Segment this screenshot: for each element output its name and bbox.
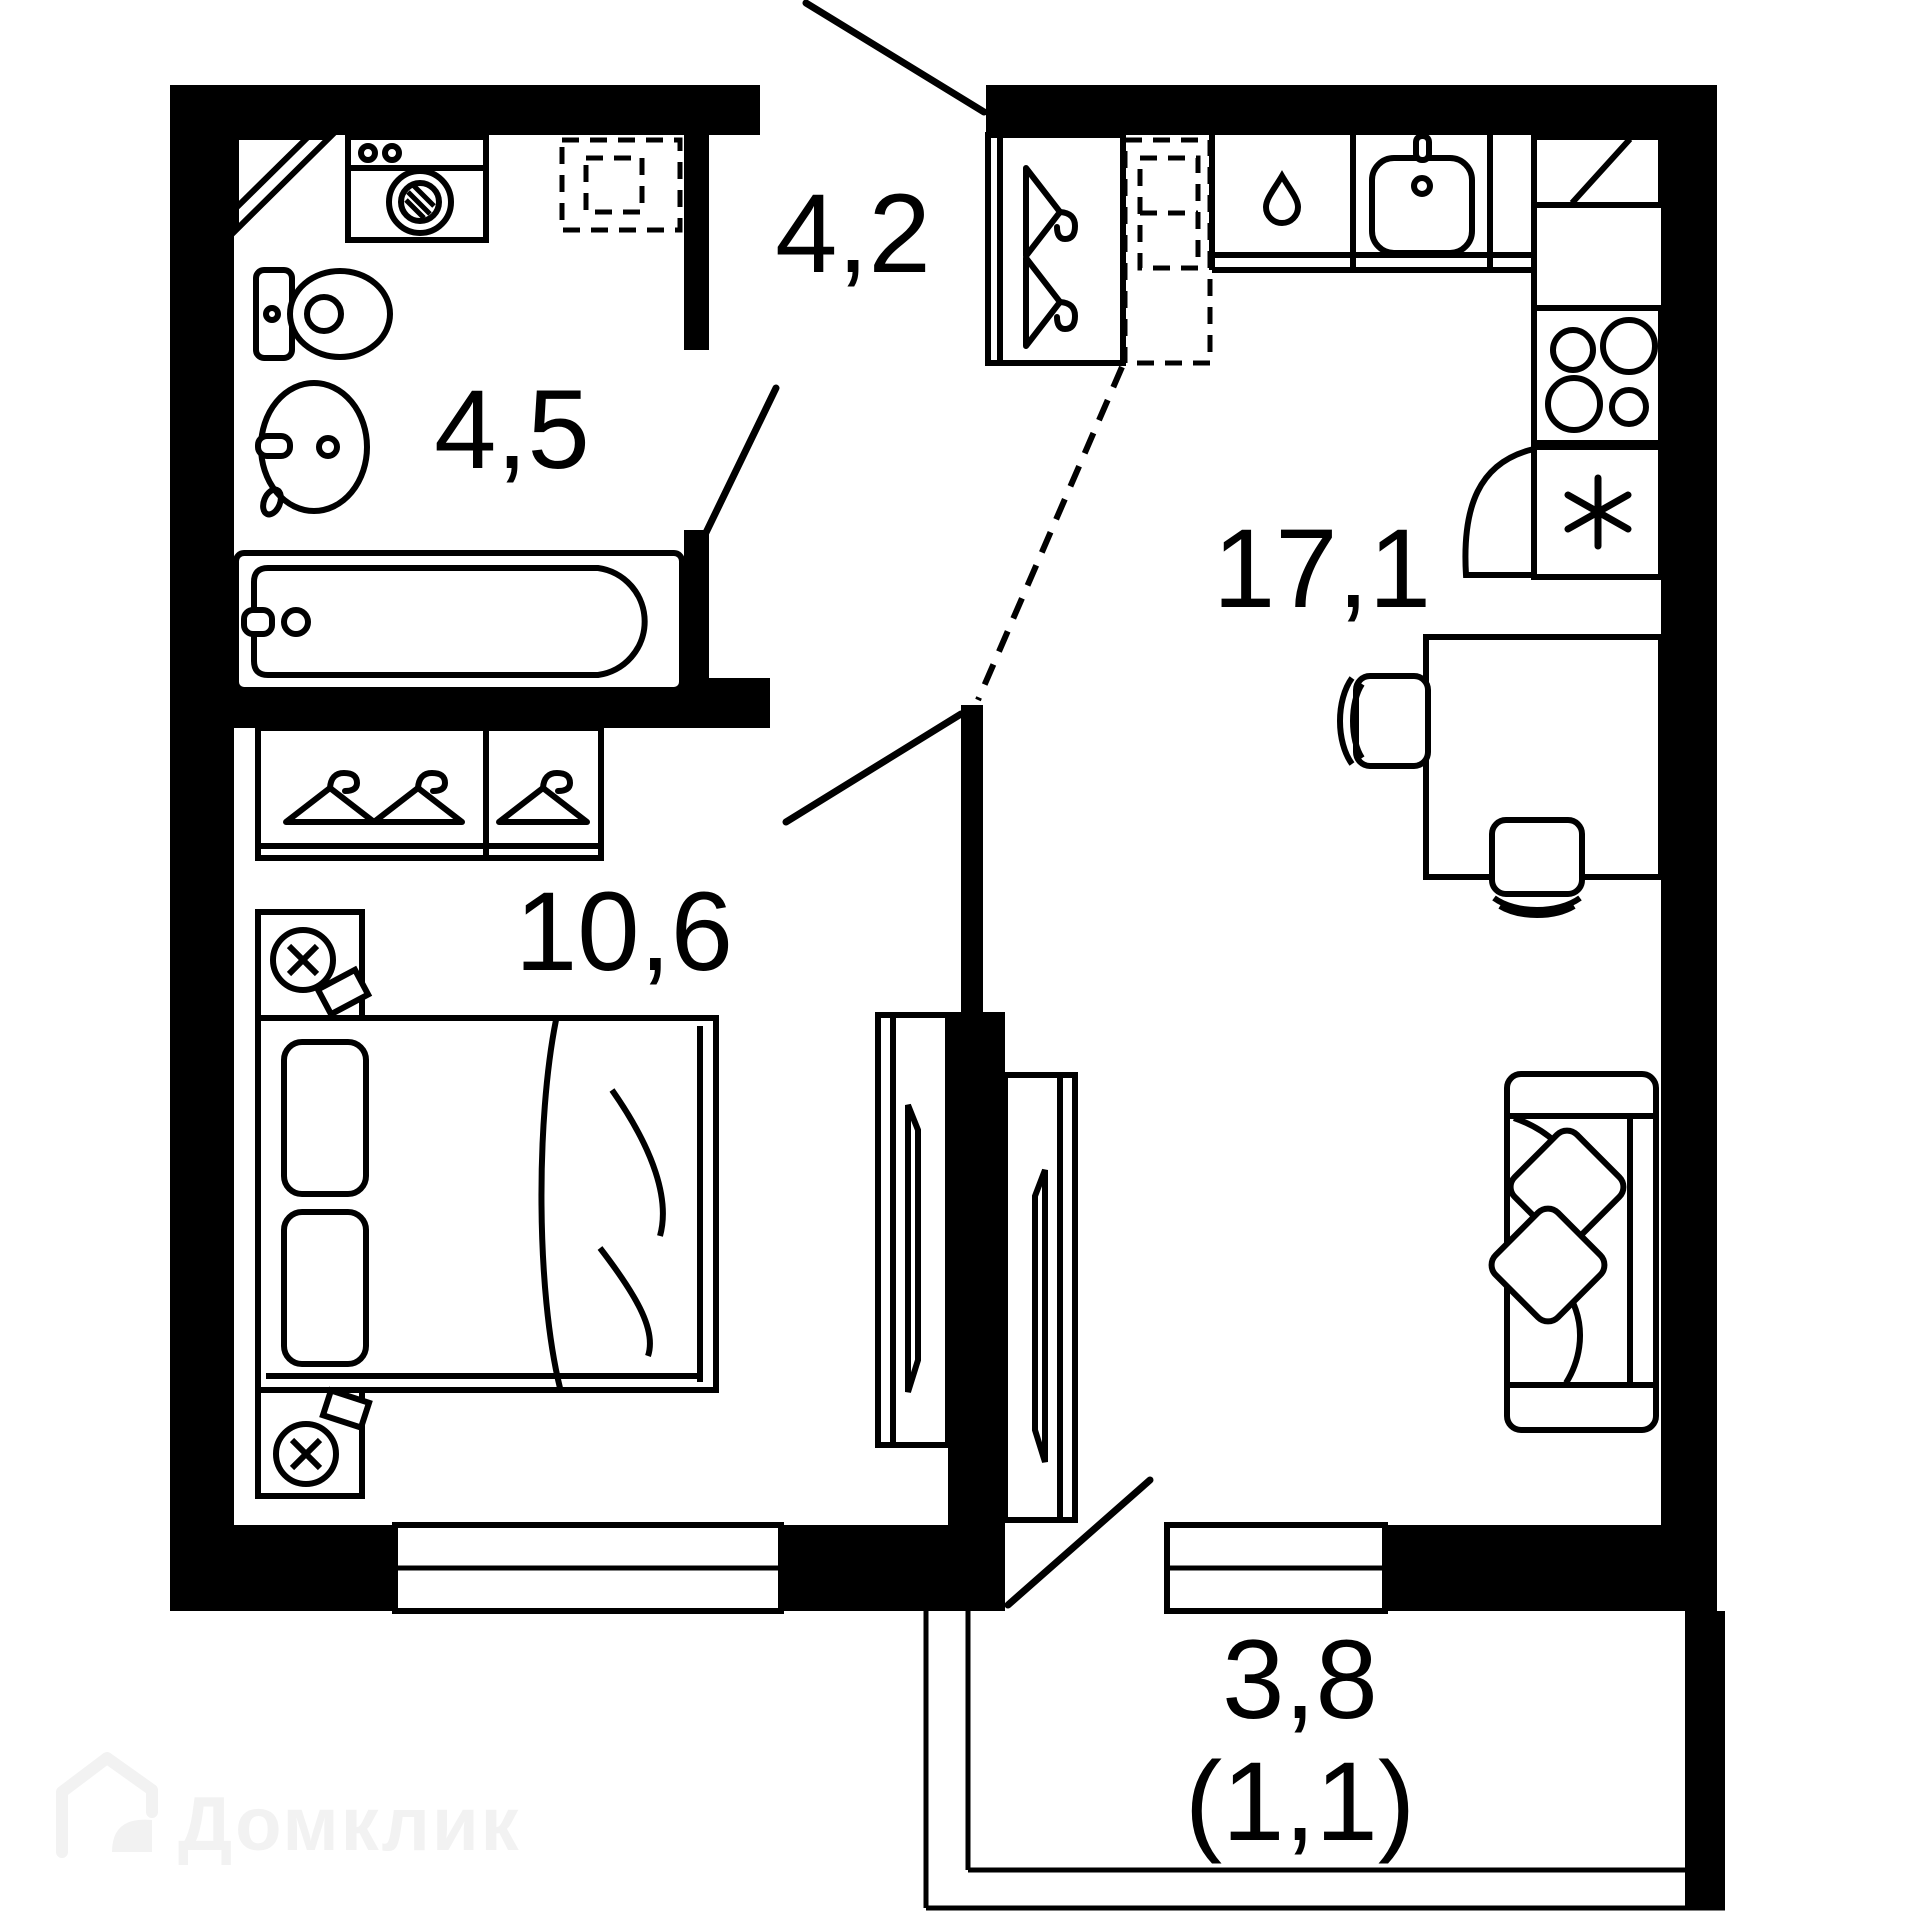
- living-window: [1167, 1525, 1385, 1611]
- bedroom-window: [395, 1525, 781, 1611]
- stove-icon: [1534, 308, 1661, 443]
- freezer-asterisk-icon: [1534, 447, 1661, 577]
- wall-bathroom-right-lower: [684, 530, 709, 690]
- watermark-house-flag: [112, 1820, 152, 1852]
- corner-shelf-icon: [236, 137, 330, 230]
- corner-cabinet-icon: [1534, 137, 1661, 205]
- wall-bathroom-right-upper: [684, 135, 709, 350]
- wall-divider-thin: [961, 705, 983, 1015]
- washing-machine-icon: [348, 137, 486, 240]
- wall-balcony-right: [1685, 1611, 1725, 1908]
- counter-end-arc: [1465, 449, 1534, 575]
- kitchen-counter: [1212, 135, 1661, 308]
- lamp-icon: [273, 930, 333, 990]
- kitchen-fixtures: [988, 135, 1661, 1520]
- kitchen-living-area-label: 17,1: [1213, 506, 1431, 631]
- balcony-reduced-area-label: (1,1): [1185, 1739, 1415, 1864]
- sofa-icon: [1486, 1074, 1656, 1430]
- walls: [170, 85, 1725, 1908]
- nightstand-bottom: [258, 1390, 369, 1496]
- sliding-wardrobe-living: [1005, 1075, 1075, 1520]
- bedroom-door-swing: [786, 714, 961, 822]
- wash-basin-icon: [258, 383, 367, 517]
- balcony-area-label: 3,8: [1222, 1617, 1378, 1742]
- sliding-wardrobe-bedroom: [878, 1015, 948, 1445]
- fridge-dashed-icon: [1125, 140, 1210, 363]
- chair-bottom: [1492, 820, 1582, 915]
- hallway-area-label: 4,2: [775, 171, 931, 296]
- hall-closet-hangers-icon: [988, 135, 1123, 363]
- watermark: Домклик: [62, 1758, 521, 1867]
- wall-bottom-bedroom-right: [781, 1525, 1005, 1611]
- bedroom-area-label: 10,6: [515, 869, 733, 994]
- kitchen-sink-icon: [1372, 136, 1472, 253]
- floor-plan-page: 4,5 4,2 17,1 10,6 3,8 (1,1) Домклик: [0, 0, 1920, 1920]
- closet-swing-dashed: [978, 367, 1122, 700]
- bathroom-area-label: 4,5: [434, 367, 590, 492]
- wall-top-kitchen: [986, 85, 1717, 135]
- entrance-door-swing: [806, 3, 984, 112]
- wardrobe-hangers-icon: [258, 728, 601, 858]
- wall-bottom-living: [1385, 1525, 1717, 1611]
- lamp-icon: [276, 1424, 336, 1484]
- bathtub-icon: [236, 553, 682, 690]
- floor-plan-drawing: 4,5 4,2 17,1 10,6 3,8 (1,1) Домклик: [0, 0, 1920, 1920]
- dishwasher-drop-icon: [1266, 176, 1298, 223]
- toilet-icon: [256, 270, 390, 358]
- double-bed-icon: [258, 1018, 716, 1390]
- water-heater-dashed-icon: [562, 140, 680, 230]
- wall-divider-thick: [948, 1012, 1005, 1611]
- wall-left: [170, 85, 234, 1611]
- bedroom-furniture: [258, 728, 948, 1496]
- chair-left: [1340, 676, 1428, 766]
- watermark-text: Домклик: [178, 1782, 521, 1867]
- wall-bottom-bedroom-left: [170, 1525, 395, 1611]
- wall-top-left: [170, 85, 760, 135]
- wall-right: [1661, 85, 1717, 1611]
- bathroom-door-swing: [700, 388, 776, 545]
- nightstand-top: [258, 912, 368, 1018]
